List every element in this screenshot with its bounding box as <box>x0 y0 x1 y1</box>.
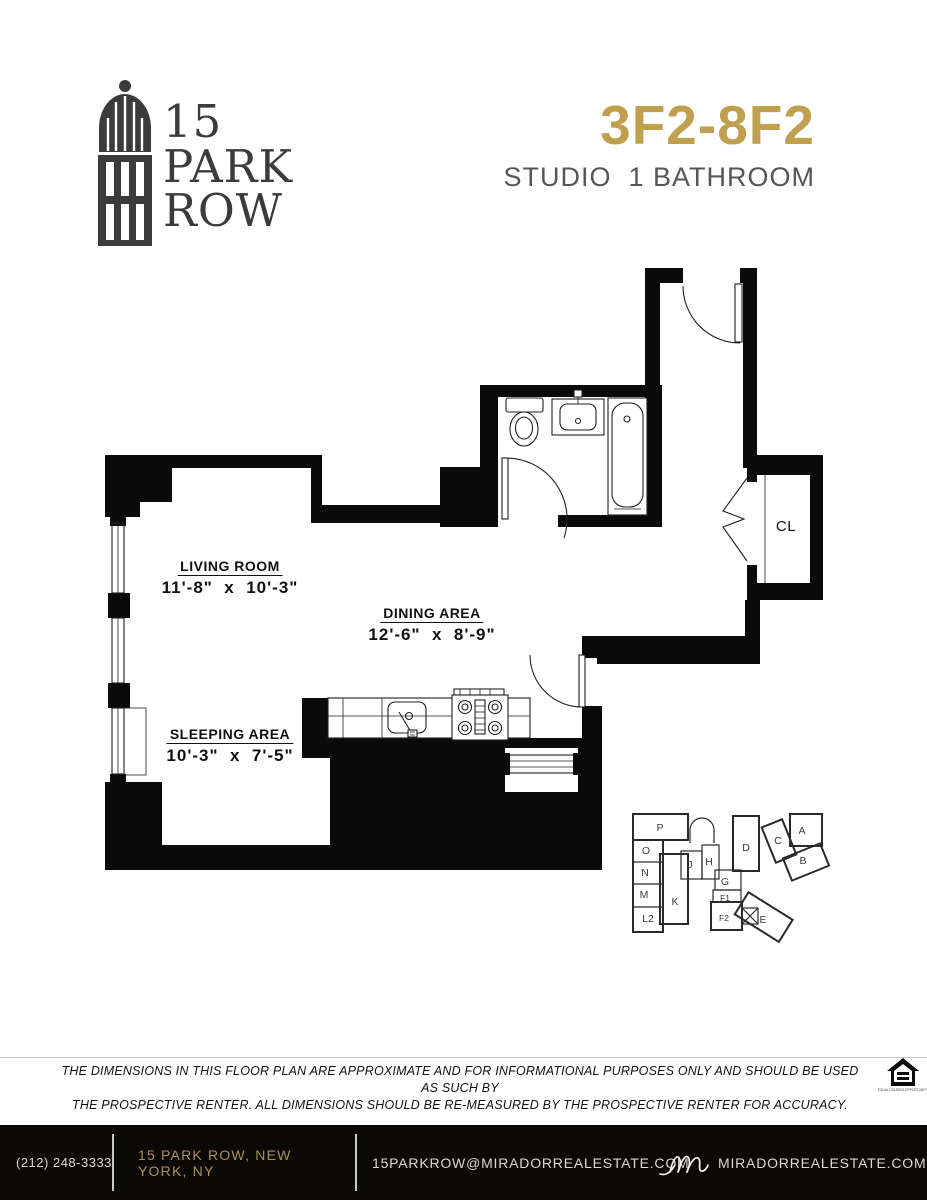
keyplan-unit-label-f2: F2 <box>719 913 729 923</box>
disclaimer-text: THE DIMENSIONS IN THIS FLOOR PLAN ARE AP… <box>55 1063 865 1114</box>
keyplan-labels: PONML2KJHDGF1F2ECAB <box>640 822 807 926</box>
kitchen-pass-window <box>505 748 578 792</box>
keyplan-unit-label-a: A <box>798 825 805 837</box>
bathroom-door <box>502 458 567 538</box>
footer-divider-1 <box>112 1134 114 1191</box>
keyplan-unit-label-g: G <box>721 876 729 888</box>
unit-title: 3F2-8F2 <box>503 98 815 153</box>
keyplan-elevator-icon <box>742 908 758 924</box>
footer-website[interactable]: MIRADORREALESTATE.COM <box>718 1125 926 1200</box>
dining-area-name: DINING AREA <box>380 605 484 623</box>
disclaimer-line-2: THE PROSPECTIVE RENTER. ALL DIMENSIONS S… <box>55 1097 865 1114</box>
entry-door <box>683 284 742 343</box>
sleeping-area-dims: 10'-3" x 7'-5" <box>166 746 293 766</box>
stove <box>452 689 508 740</box>
living-room-dims: 11'-8" x 10'-3" <box>162 578 299 598</box>
keyplan-unit-label-f1: F1 <box>720 893 730 903</box>
dining-area-label: DINING AREA 12'-6" x 8'-9" <box>368 605 495 645</box>
mirador-signature-icon <box>658 1141 710 1185</box>
keyplan-unit-label-h: H <box>705 856 713 868</box>
bathtub <box>608 398 647 515</box>
keyplan-unit-label-p: P <box>656 822 663 834</box>
logo-line-2: PARK <box>163 145 293 190</box>
equal-housing-label: EQUAL HOUSING OPPORTUNITY <box>878 1088 927 1092</box>
footer-phone[interactable]: (212) 248-3333 <box>16 1125 112 1200</box>
logo-line-3: ROW <box>163 189 293 234</box>
footer-bar: (212) 248-3333 15 PARK ROW, NEW YORK, NY… <box>0 1125 927 1200</box>
window-unit <box>124 708 146 775</box>
divider-rule <box>0 1057 927 1058</box>
dining-area-dims: 12'-6" x 8'-9" <box>368 625 495 645</box>
keyplan-unit-label-d: D <box>742 842 750 854</box>
keyplan-unit-label-n: N <box>641 867 649 879</box>
footer-address: 15 PARK ROW, NEW YORK, NY <box>138 1125 334 1200</box>
keyplan-unit-label-c: C <box>774 835 782 847</box>
keyplan-unit-label-l2: L2 <box>642 913 654 925</box>
equal-housing-icon: EQUAL HOUSING OPPORTUNITY <box>878 1058 927 1092</box>
keyplan-unit-label-o: O <box>642 845 650 857</box>
kitchen-door <box>530 655 585 707</box>
sleeping-area-label: SLEEPING AREA 10'-3" x 7'-5" <box>166 726 293 766</box>
living-room-label: LIVING ROOM 11'-8" x 10'-3" <box>162 558 299 598</box>
park-row-building-icon <box>98 80 152 246</box>
unit-subtitle: STUDIO 1 BATHROOM <box>503 162 815 193</box>
toilet <box>506 398 543 446</box>
keyplan: PONML2KJHDGF1F2ECAB <box>633 814 829 942</box>
sleeping-area-name: SLEEPING AREA <box>167 726 293 744</box>
keyplan-unit-label-e: E <box>759 914 766 926</box>
living-room-windows <box>112 523 146 775</box>
living-room-name: LIVING ROOM <box>177 558 283 576</box>
disclaimer-line-1: THE DIMENSIONS IN THIS FLOOR PLAN ARE AP… <box>55 1063 865 1097</box>
keyplan-unit-label-m: M <box>640 889 649 901</box>
keyplan-unit-label-k: K <box>671 896 678 908</box>
closet-bifold-door <box>723 475 765 583</box>
keyplan-unit-label-j: J <box>687 859 692 871</box>
logo-line-1: 15 <box>163 100 293 145</box>
footer-email[interactable]: 15PARKROW@MIRADORREALESTATE.COM <box>372 1125 690 1200</box>
keyplan-unit-label-b: B <box>799 855 806 867</box>
closet-label: CL <box>776 518 796 535</box>
unit-header: 3F2-8F2 STUDIO 1 BATHROOM <box>503 98 815 193</box>
logo-wordmark: 15 PARK ROW <box>163 100 293 234</box>
footer-divider-2 <box>355 1134 357 1191</box>
